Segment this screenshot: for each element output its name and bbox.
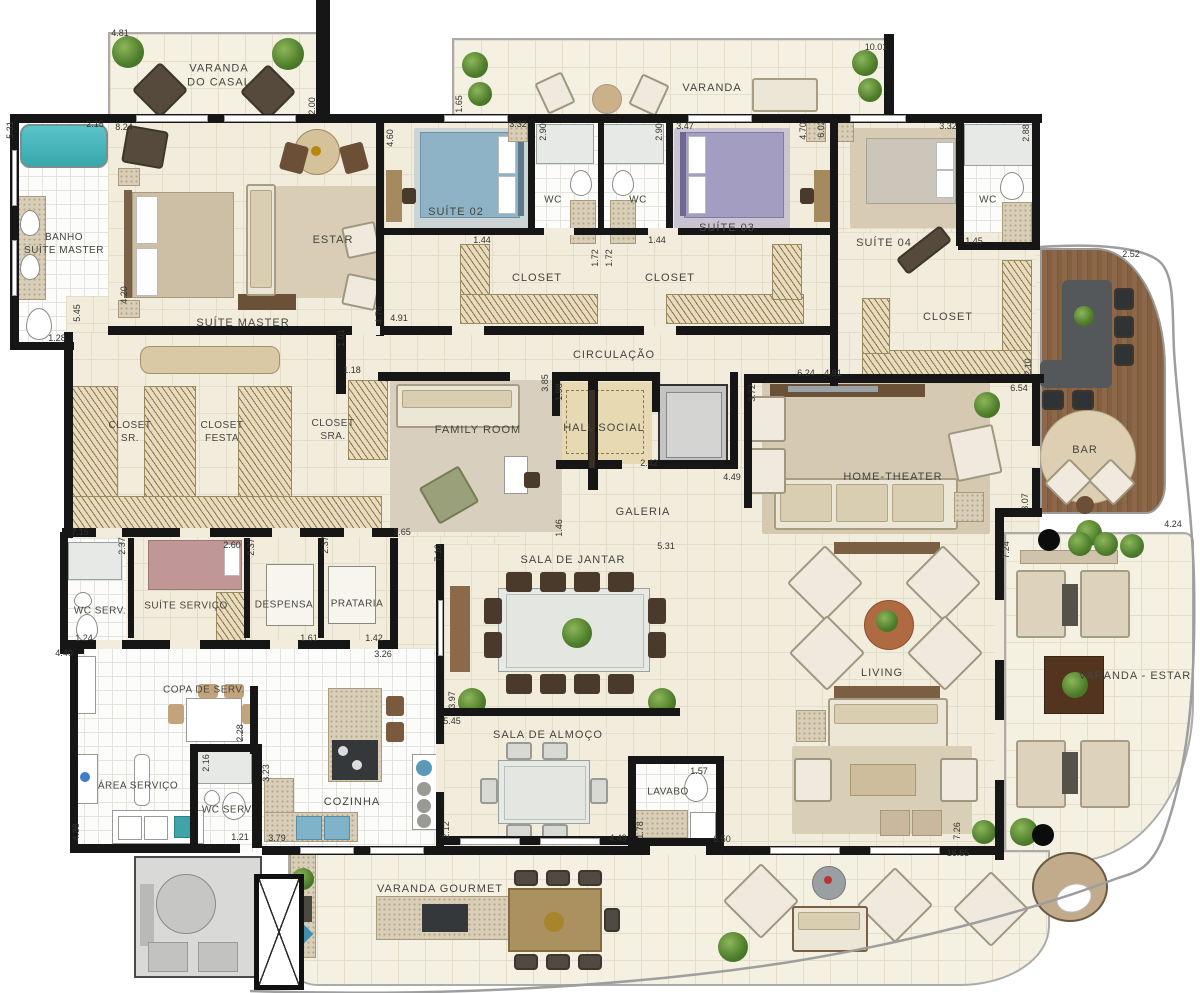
wall xyxy=(528,120,535,232)
dim-label: 2.90 xyxy=(654,123,664,141)
door-opening xyxy=(452,326,484,335)
dim-label: 3.72 xyxy=(747,384,757,402)
room-label-cozinha: COZINHA xyxy=(324,795,381,809)
room-label-wc-serv-2: WC SERV. xyxy=(202,804,254,817)
dim-label: 1.46 xyxy=(554,519,564,537)
dim-label: 4.49 xyxy=(723,472,741,482)
dim-label: 6.50 xyxy=(713,834,731,844)
wall xyxy=(830,114,838,236)
room-label-closet-sr: CLOSET SR. xyxy=(108,419,151,445)
wall xyxy=(1032,374,1040,446)
room-label-lavabo: LAVABO xyxy=(647,786,689,799)
room-label-copa: COPA DE SERV. xyxy=(163,684,245,697)
wall xyxy=(436,544,444,852)
dim-label: 1.72 xyxy=(590,249,600,267)
wall xyxy=(628,756,724,764)
wall xyxy=(252,744,262,848)
window xyxy=(870,847,940,854)
dim-label: 3.07 xyxy=(1020,493,1030,511)
door-opening xyxy=(352,326,380,335)
room-label-wc-04: WC xyxy=(979,194,997,207)
room-label-suite-servico: SUÍTE SERVIÇO xyxy=(144,600,228,613)
dim-label: 1.28 xyxy=(48,333,66,343)
door-opening xyxy=(644,326,676,335)
room-label-closet-02: CLOSET xyxy=(512,271,562,285)
wall xyxy=(648,460,732,469)
dim-label: 1.61 xyxy=(300,633,318,643)
room-label-circulacao: CIRCULAÇÃO xyxy=(573,348,655,362)
dim-label: 1.98 xyxy=(554,383,564,401)
dim-label: 4.88 xyxy=(71,823,81,841)
wall xyxy=(730,372,738,469)
room-label-home-theater: HOME-THEATER xyxy=(843,470,942,484)
room-label-family-room: FAMILY ROOM xyxy=(435,423,521,437)
room-label-banho: BANHO SUÍTE MASTER xyxy=(24,231,104,257)
door-opening xyxy=(544,228,574,235)
wall xyxy=(376,114,384,336)
window xyxy=(438,600,443,656)
dim-label: 3.26 xyxy=(374,649,392,659)
dim-label: 5.45 xyxy=(72,304,82,322)
door-opening xyxy=(648,228,678,235)
dim-label: 2.16 xyxy=(201,754,211,772)
dim-label: 1.45 xyxy=(965,236,983,246)
door-opening xyxy=(995,720,1004,780)
window xyxy=(540,838,600,845)
dim-label: 4.20 xyxy=(119,286,129,304)
dim-label: 4.81 xyxy=(111,28,129,38)
wall xyxy=(70,650,78,850)
dim-label: 7.24 xyxy=(1001,541,1011,559)
dim-label: 2.37 xyxy=(246,538,256,556)
dim-label: 1.44 xyxy=(473,235,491,245)
dim-label: 2.28 xyxy=(235,724,245,742)
dim-label: 4.49 xyxy=(609,833,627,843)
door-opening xyxy=(270,640,298,649)
dim-label: 2.37 xyxy=(320,536,330,554)
dim-label: 10.01 xyxy=(865,42,888,52)
room-label-varanda-gourmet: VARANDA GOURMET xyxy=(377,882,503,896)
dim-label: 3.79 xyxy=(268,833,286,843)
room-label-closet-festa: CLOSET FESTA xyxy=(200,419,243,445)
dim-label: 1.78 xyxy=(635,821,645,839)
door-opening xyxy=(436,744,444,792)
dim-label: 2.12 xyxy=(441,821,451,839)
dim-label: 2.60 xyxy=(223,540,241,550)
dim-label: 1.44 xyxy=(648,235,666,245)
dim-label: 2.10 xyxy=(1023,358,1033,376)
dim-label: 2.15 xyxy=(86,119,104,129)
wall xyxy=(384,228,836,235)
dim-label: 4.70 xyxy=(798,122,808,140)
window xyxy=(444,115,508,122)
window xyxy=(850,115,906,122)
window xyxy=(12,240,17,296)
dim-label: 3.23 xyxy=(261,764,271,782)
door-opening xyxy=(170,640,200,649)
dim-label: 4.76 xyxy=(374,306,384,324)
dim-label: 1.72 xyxy=(604,249,614,267)
room-label-varanda-estar: VARANDA - ESTAR xyxy=(1079,669,1191,683)
room-label-prataria: PRATARIA xyxy=(331,598,384,611)
room-label-closet-03: CLOSET xyxy=(645,271,695,285)
wall xyxy=(316,0,330,122)
window xyxy=(224,115,296,122)
dim-label: 1.24 xyxy=(75,633,93,643)
dim-label: 3.65 xyxy=(393,527,411,537)
wall xyxy=(190,744,262,752)
dim-label: 4.60 xyxy=(385,129,395,147)
room-label-varanda-casal: VARANDA DO CASAL xyxy=(187,62,251,91)
dim-label: 1.18 xyxy=(343,365,361,375)
window xyxy=(136,115,208,122)
dim-label: 2.00 xyxy=(307,97,317,115)
dim-label: 7.10 xyxy=(433,544,443,562)
dim-label: 1.65 xyxy=(454,95,464,113)
wall xyxy=(652,372,660,412)
window xyxy=(370,847,424,854)
dim-label: 3.85 xyxy=(540,374,550,392)
room-label-living: LIVING xyxy=(861,666,903,680)
dim-label: 4.40 xyxy=(55,648,73,658)
wall xyxy=(1032,114,1040,250)
dim-label: 2.52 xyxy=(1122,249,1140,259)
window xyxy=(770,847,840,854)
wall xyxy=(128,538,134,638)
window xyxy=(12,150,17,206)
dim-label: 16.65 xyxy=(947,848,970,858)
room-label-varanda: VARANDA xyxy=(682,81,741,95)
dim-label: 5.31 xyxy=(5,121,15,139)
room-label-closet-04: CLOSET xyxy=(923,310,973,324)
room-label-sala-almoco: SALA DE ALMOÇO xyxy=(493,728,603,742)
dim-label: 2.42 xyxy=(640,458,658,468)
wall xyxy=(390,538,398,640)
room-label-closet-sra: CLOSET SRA. xyxy=(311,417,354,443)
wall xyxy=(1032,468,1040,514)
dim-label: 7.26 xyxy=(952,822,962,840)
room-label-bar: BAR xyxy=(1072,443,1098,457)
wall xyxy=(64,332,73,538)
door-opening xyxy=(650,846,706,855)
floor-plan: VARANDA DO CASAL BANHO SUÍTE MASTER SUÍT… xyxy=(0,0,1200,993)
dim-label: 5.31 xyxy=(657,541,675,551)
room-label-suite-02: SUÍTE 02 xyxy=(428,205,484,219)
wall xyxy=(190,744,198,848)
door-opening xyxy=(96,528,122,537)
window xyxy=(300,847,354,854)
door-opening xyxy=(995,600,1004,660)
dim-label: 4.91 xyxy=(824,368,842,378)
door-opening xyxy=(344,528,372,537)
dim-label: 1.21 xyxy=(231,832,249,842)
wall xyxy=(552,372,660,381)
wall xyxy=(995,508,1004,860)
dim-label: 6.54 xyxy=(1010,383,1028,393)
wall xyxy=(378,372,510,381)
dim-label: 4.91 xyxy=(390,313,408,323)
window xyxy=(460,838,520,845)
dim-label: 1.01 xyxy=(336,329,346,347)
door-opening xyxy=(180,528,210,537)
room-label-sala-jantar: SALA DE JANTAR xyxy=(521,553,626,567)
room-label-estar: ESTAR xyxy=(313,233,354,247)
dim-label: 2.37 xyxy=(117,537,127,555)
dim-label: 8.24 xyxy=(115,122,133,132)
room-label-wc-a: WC xyxy=(544,194,562,207)
window xyxy=(688,115,752,122)
dim-label: 2.88 xyxy=(1021,124,1031,142)
room-label-hall-social: HALL SOCIAL xyxy=(563,421,645,435)
dim-label: 3.32 xyxy=(939,121,957,131)
room-label-wc-serv-1: WC SERV. xyxy=(74,605,126,618)
wall xyxy=(444,708,680,716)
room-label-suite-master: SUÍTE MASTER xyxy=(196,316,289,330)
room-label-galeria: GALERIA xyxy=(616,505,671,519)
wall xyxy=(752,374,1044,383)
room-label-area-servico: ÁREA SERVIÇO xyxy=(98,780,178,793)
door-opening xyxy=(96,640,122,649)
wall xyxy=(666,120,673,232)
room-label-suite-03: SUÍTE 03 xyxy=(699,221,755,235)
dim-label: 3.47 xyxy=(676,121,694,131)
wall xyxy=(956,114,964,246)
dim-label: 2.90 xyxy=(538,123,548,141)
dim-label: 3.32 xyxy=(509,119,527,129)
wall xyxy=(60,532,68,650)
dim-label: 1.42 xyxy=(365,633,383,643)
wall xyxy=(70,844,240,853)
wall xyxy=(830,236,838,386)
dim-label: 4.24 xyxy=(1164,519,1182,529)
room-label-despensa: DESPENSA xyxy=(255,599,313,612)
room-label-suite-04: SUÍTE 04 xyxy=(856,236,912,250)
room-label-wc-b: WC xyxy=(629,194,647,207)
door-opening xyxy=(272,528,300,537)
dim-label: 6.24 xyxy=(797,368,815,378)
dim-label: 1.57 xyxy=(690,766,708,776)
wall xyxy=(598,120,604,232)
dim-label: 6.02 xyxy=(816,120,826,138)
dim-label: 7.15 xyxy=(71,527,89,537)
dim-label: 5.45 xyxy=(443,716,461,726)
dim-label: 3.97 xyxy=(447,691,457,709)
